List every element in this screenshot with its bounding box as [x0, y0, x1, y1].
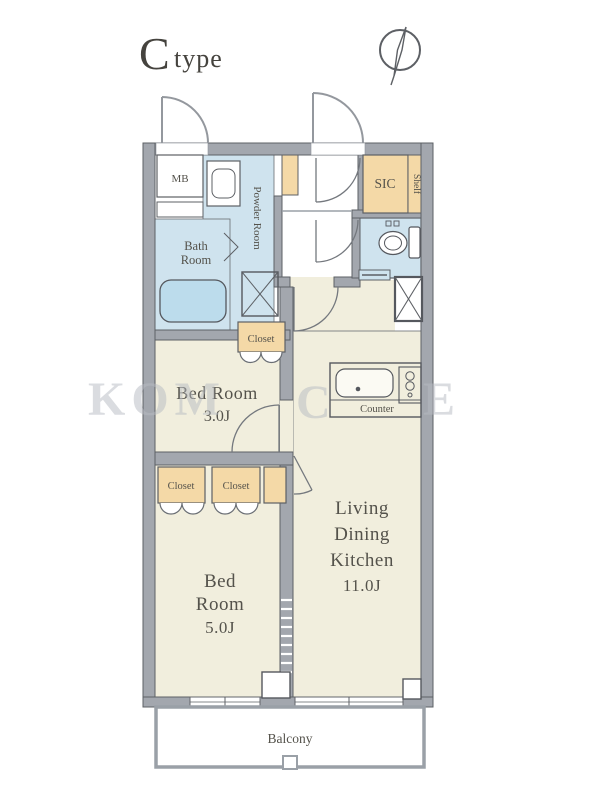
ldk-label-2: Dining [334, 524, 390, 545]
pipe-space-box [157, 202, 203, 217]
wall-toilet-left [352, 218, 360, 278]
closet-b-label: Closet [223, 481, 250, 492]
bed3-door-opening [280, 400, 293, 452]
ldk-label-3: Kitchen [330, 550, 394, 571]
shelf-label: Shelf [411, 174, 422, 195]
floor-plan-page: MB Powder Room Bath Room SIC Shelf Close… [0, 0, 600, 800]
compass-circle [380, 30, 420, 70]
entry-inner-door-swing [316, 158, 360, 202]
closet-c-box [264, 467, 286, 503]
compass-tail [391, 76, 394, 85]
north-compass-icon [380, 27, 420, 85]
column-center [262, 672, 290, 698]
bath-room-label-1: Bath [184, 239, 208, 253]
floor-plan: MB Powder Room Bath Room SIC Shelf Close… [0, 0, 600, 800]
mb-label: MB [171, 173, 188, 185]
closet-bed3-label: Closet [248, 334, 275, 345]
toilet-bowl [379, 232, 407, 255]
plan-type-letter: C [139, 28, 170, 79]
column-right [403, 679, 421, 699]
balcony-label: Balcony [268, 731, 313, 746]
bed-room-5-label-1: Bed [204, 571, 236, 592]
bed-room-5-size: 5.0J [205, 618, 235, 637]
closet-a-label: Closet [168, 481, 195, 492]
counter-label: Counter [360, 404, 394, 415]
ldk-hall-opening [290, 277, 334, 288]
watermark-left: KOM [88, 373, 226, 426]
wall-powder-hall [274, 196, 282, 277]
service-door-gap [156, 143, 208, 155]
watermark-mid: C [296, 376, 337, 429]
entrance-cabinet [282, 155, 298, 195]
kitchen-sink [336, 369, 393, 397]
toilet-tank [409, 227, 420, 258]
entrance-door-gap [311, 143, 365, 155]
service-door-swing [162, 97, 208, 143]
plan-type-word: type [174, 44, 223, 73]
sink-faucet [356, 387, 361, 392]
bathtub [160, 280, 226, 322]
balcony-divider [283, 756, 297, 769]
bed-room-5-label-2: Room [196, 594, 244, 615]
ldk-label-1: Living [335, 498, 389, 519]
entrance-door-swing [313, 93, 363, 143]
ldk-area-right [358, 280, 395, 331]
powder-room-label: Powder Room [251, 186, 263, 250]
ldk-size: 11.0J [343, 576, 381, 595]
watermark-right: E [423, 373, 461, 426]
ldk-area-upper [293, 287, 358, 331]
bath-room-label-2: Room [181, 253, 212, 267]
wall-hall-bottom-left [274, 277, 290, 287]
wall-closet-band [155, 452, 293, 465]
pipe-shaft [395, 277, 422, 321]
sic-label: SIC [374, 176, 395, 191]
